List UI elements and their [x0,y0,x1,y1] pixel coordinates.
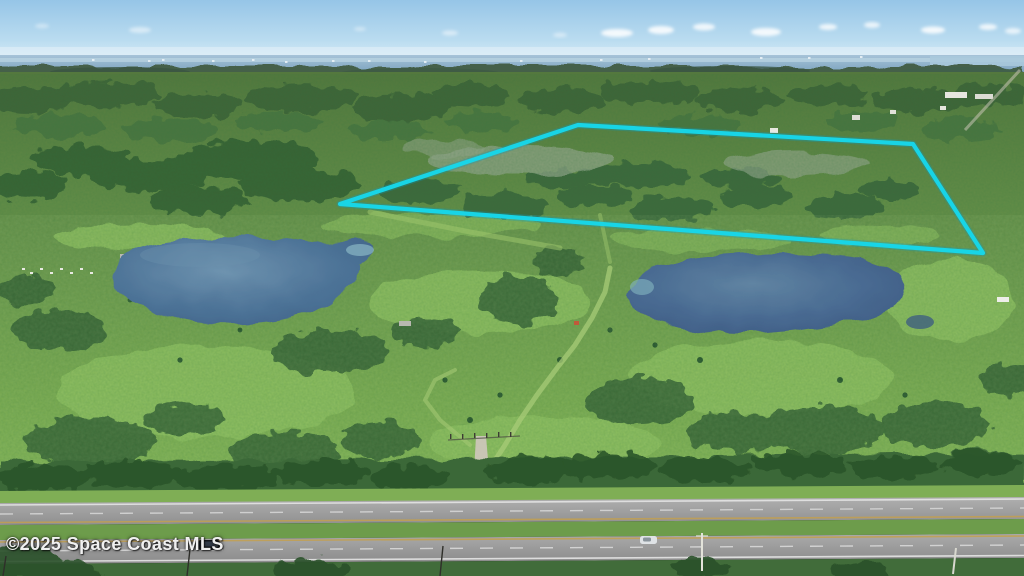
watermark: ©2025 Space Coast MLS [6,534,224,555]
sky [0,0,1024,62]
aerial-photo: ©2025 Space Coast MLS [0,0,1024,576]
white-car [640,536,657,544]
aerial-scene [0,0,1024,576]
